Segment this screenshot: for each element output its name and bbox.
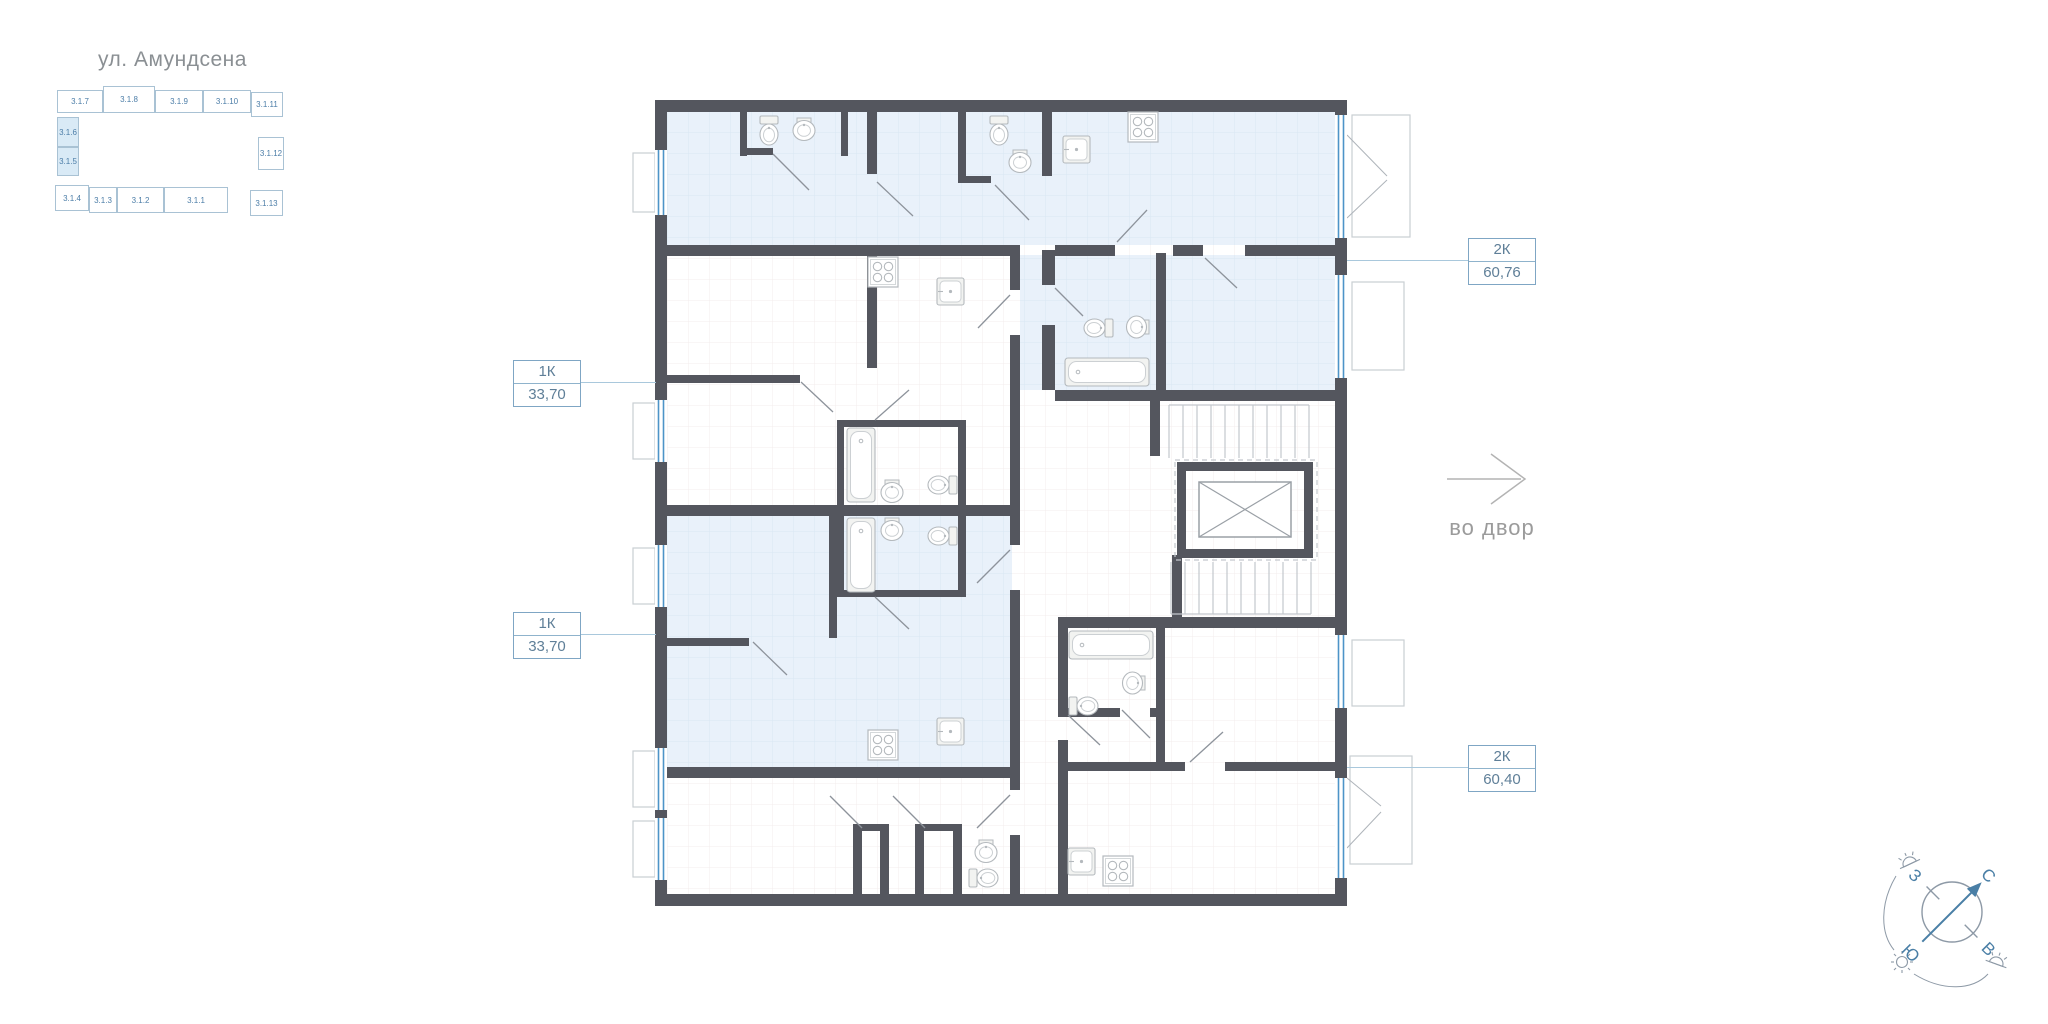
minimap-cell-3.1.6[interactable]: 3.1.6 [57, 117, 79, 147]
minimap-cell-3.1.9[interactable]: 3.1.9 [155, 90, 203, 113]
apartment-label-1k-bottom[interactable]: 1К 33,70 [513, 612, 581, 659]
minimap-cell-3.1.2[interactable]: 3.1.2 [117, 187, 164, 213]
apartment-area: 60,40 [1469, 768, 1535, 791]
elevator [1199, 482, 1291, 537]
apartment-label-1k-top[interactable]: 1К 33,70 [513, 360, 581, 407]
bathtub-icon [1069, 631, 1153, 659]
apartment-type: 2К [1469, 239, 1535, 261]
floorplan-drawing [625, 90, 1445, 930]
apartment-type: 2К [1469, 746, 1535, 768]
apartment-area: 60,76 [1469, 261, 1535, 284]
minimap-cell-3.1.1[interactable]: 3.1.1 [164, 187, 228, 213]
leader-line-1k-bottom [577, 634, 656, 635]
compass-needle [1922, 889, 1974, 941]
compass-rose: С В Ю З [1878, 838, 2028, 988]
apartment-label-2k-bottom[interactable]: 2К 60,40 [1468, 745, 1536, 792]
minimap-cell-3.1.12[interactable]: 3.1.12 [258, 137, 284, 170]
floorplan-page: ул. Амундсена 3.1.7 3.1.8 3.1.9 3.1.10 3… [0, 0, 2048, 1024]
minimap-cell-3.1.5[interactable]: 3.1.5 [57, 147, 79, 176]
toilet-icon [1069, 697, 1098, 715]
bathtub-icon [1065, 358, 1149, 386]
minimap-cell-3.1.11[interactable]: 3.1.11 [251, 92, 283, 117]
courtyard-label: во двор [1437, 515, 1547, 541]
minimap-cell-3.1.4[interactable]: 3.1.4 [55, 185, 89, 211]
bathtub-icon [847, 428, 875, 502]
toilet-icon [928, 527, 957, 545]
toilet-icon [760, 116, 778, 145]
leader-line-2k-top [1347, 260, 1468, 261]
compass-south-label: Ю [1898, 941, 1924, 967]
leader-line-2k-bottom [1347, 767, 1468, 768]
minimap-cell-3.1.13[interactable]: 3.1.13 [250, 190, 283, 216]
compass-west-label: З [1905, 865, 1926, 886]
apartment-type: 1К [514, 361, 580, 383]
apartment-type: 1К [514, 613, 580, 635]
courtyard-arrow [1445, 448, 1555, 510]
stove-icon [1103, 856, 1133, 886]
kitchen-sink-icon [1068, 848, 1095, 875]
stove-icon [1128, 112, 1158, 142]
toilet-icon [928, 476, 957, 494]
bathtub-icon [847, 518, 875, 592]
minimap-cell-3.1.3[interactable]: 3.1.3 [89, 187, 117, 213]
apartment-area: 33,70 [514, 383, 580, 406]
floor-minimap: 3.1.7 3.1.8 3.1.9 3.1.10 3.1.11 3.1.6 3.… [50, 82, 296, 224]
apartment-area: 33,70 [514, 635, 580, 658]
stove-icon [868, 730, 898, 760]
toilet-icon [990, 116, 1008, 145]
stove-icon [868, 257, 898, 287]
minimap-cell-3.1.8[interactable]: 3.1.8 [103, 86, 155, 113]
minimap-cell-3.1.10[interactable]: 3.1.10 [203, 90, 251, 113]
minimap-cell-3.1.7[interactable]: 3.1.7 [57, 90, 103, 113]
kitchen-sink-icon [937, 278, 964, 305]
toilet-icon [1084, 319, 1113, 337]
leader-line-1k-top [577, 382, 656, 383]
street-name: ул. Амундсена [98, 48, 247, 72]
kitchen-sink-icon [937, 718, 964, 745]
apartment-label-2k-top[interactable]: 2К 60,76 [1468, 238, 1536, 285]
toilet-icon [969, 869, 998, 887]
kitchen-sink-icon [1063, 136, 1090, 163]
